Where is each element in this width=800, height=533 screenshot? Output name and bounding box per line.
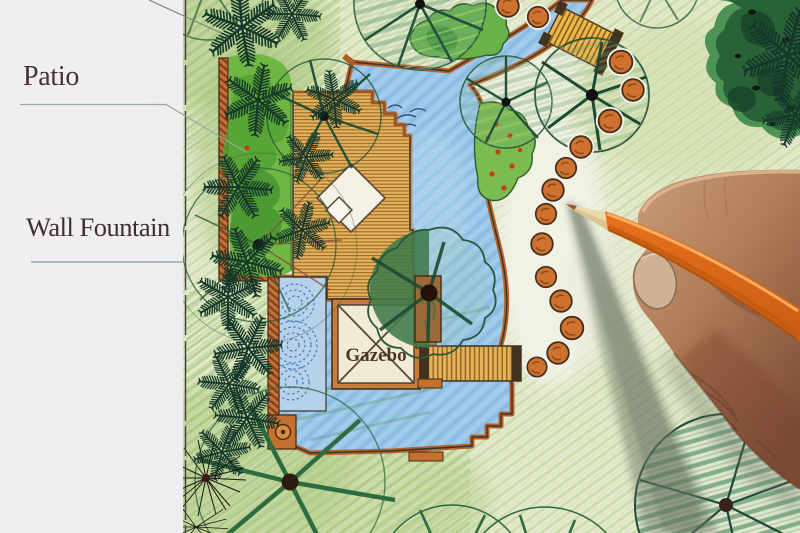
- svg-text:Wall Fountain: Wall Fountain: [26, 212, 170, 242]
- svg-text:Patio: Patio: [23, 61, 79, 92]
